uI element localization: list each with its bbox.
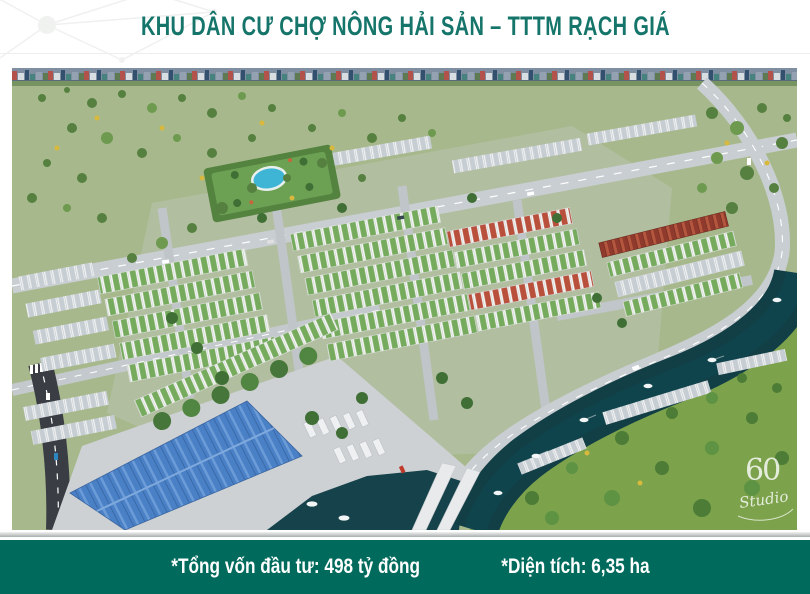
header-divider (0, 53, 810, 54)
aerial-render-image: 60 Studio (12, 68, 797, 530)
slide: KHU DÂN CƯ CHỢ NÔNG HẢI SẢN – TTTM RẠCH … (0, 0, 810, 594)
horizon-strip (12, 68, 797, 81)
aerial-render-svg: 60 Studio (12, 68, 797, 530)
footer-stats-bar: *Tổng vốn đầu tư: 498 tỷ đồng *Diện tích… (0, 540, 810, 594)
header: KHU DÂN CƯ CHỢ NÔNG HẢI SẢN – TTTM RẠCH … (0, 0, 810, 53)
footer-shadow-divider (0, 532, 810, 537)
stat-total-investment: *Tổng vốn đầu tư: 498 tỷ đồng (171, 555, 420, 579)
page-title: KHU DÂN CƯ CHỢ NÔNG HẢI SẢN – TTTM RẠCH … (140, 11, 669, 42)
watermark-number: 60 (745, 453, 780, 488)
stat-area: *Diện tích: 6,35 ha (502, 555, 650, 579)
